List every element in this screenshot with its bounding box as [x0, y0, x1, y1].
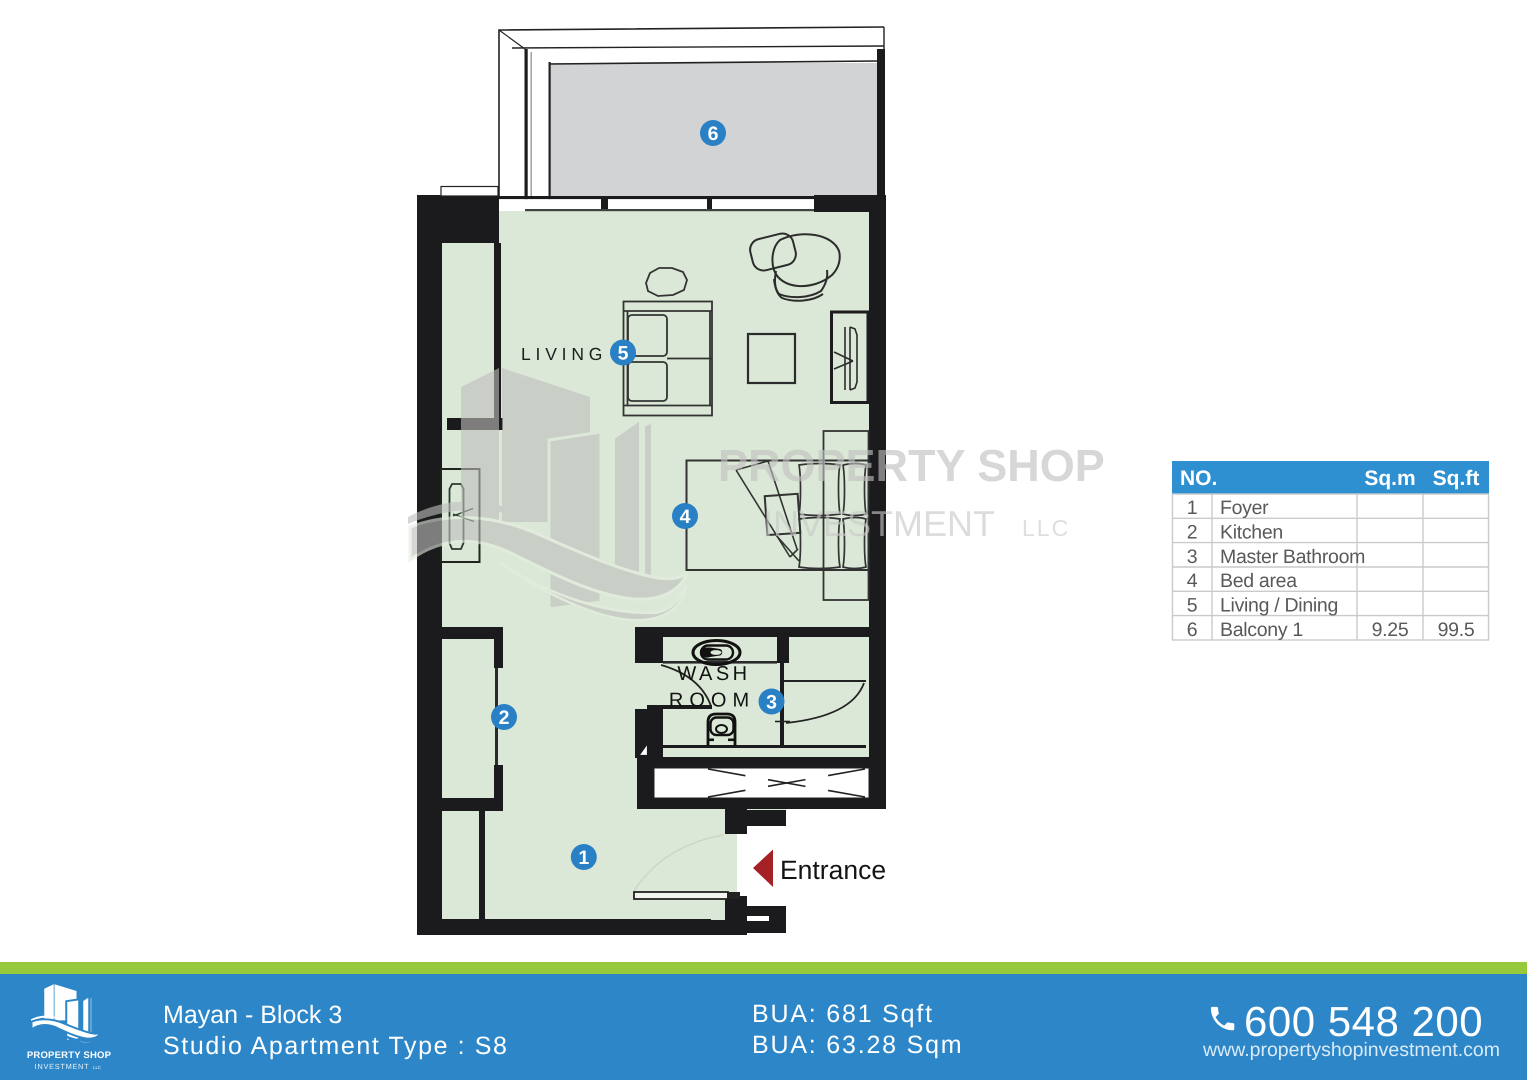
- svg-text:NO.: NO.: [1180, 467, 1217, 490]
- svg-text:BUA: 63.28 Sqm: BUA: 63.28 Sqm: [752, 1031, 963, 1059]
- svg-text:INVESTMENT: INVESTMENT: [763, 503, 995, 544]
- svg-text:LIVING: LIVING: [521, 344, 607, 364]
- svg-text:5: 5: [618, 343, 629, 365]
- svg-text:3: 3: [1187, 546, 1198, 568]
- svg-text:PROPERTY SHOP: PROPERTY SHOP: [718, 440, 1105, 491]
- svg-text:1: 1: [1187, 497, 1198, 519]
- svg-text:4: 4: [1187, 570, 1198, 592]
- svg-text:Entrance: Entrance: [780, 855, 886, 885]
- svg-text:2: 2: [1187, 522, 1198, 544]
- svg-text:600 548 200: 600 548 200: [1244, 998, 1483, 1045]
- svg-text:LLC: LLC: [1022, 515, 1070, 541]
- svg-text:Bed area: Bed area: [1220, 570, 1297, 592]
- svg-text:Living / Dining: Living / Dining: [1220, 595, 1338, 617]
- svg-text:Studio Apartment Type : S8: Studio Apartment Type : S8: [163, 1032, 509, 1060]
- svg-text:6: 6: [1187, 619, 1198, 641]
- svg-text:BUA: 681 Sqft: BUA: 681 Sqft: [752, 1000, 934, 1028]
- svg-text:6: 6: [708, 123, 719, 145]
- svg-text:99.5: 99.5: [1438, 619, 1475, 641]
- svg-text:Master Bathroom: Master Bathroom: [1220, 546, 1365, 568]
- svg-text:Sq.m: Sq.m: [1364, 467, 1415, 490]
- svg-text:Balcony 1: Balcony 1: [1220, 619, 1303, 641]
- svg-text:5: 5: [1187, 595, 1198, 617]
- svg-text:INVESTMENT: INVESTMENT: [35, 1062, 90, 1071]
- svg-text:3: 3: [766, 692, 777, 714]
- svg-text:Foyer: Foyer: [1220, 497, 1269, 519]
- svg-text:4: 4: [680, 506, 691, 528]
- svg-text:Kitchen: Kitchen: [1220, 522, 1283, 544]
- svg-text:LLC: LLC: [93, 1065, 101, 1070]
- svg-text:Sq.ft: Sq.ft: [1433, 467, 1480, 490]
- svg-text:www.propertyshopinvestment.com: www.propertyshopinvestment.com: [1202, 1039, 1500, 1061]
- svg-text:WASH: WASH: [677, 663, 750, 685]
- svg-text:9.25: 9.25: [1372, 619, 1409, 641]
- svg-text:1: 1: [578, 847, 589, 869]
- svg-text:PROPERTY SHOP: PROPERTY SHOP: [27, 1050, 112, 1061]
- svg-text:2: 2: [499, 707, 510, 729]
- svg-text:ROOM: ROOM: [669, 690, 755, 712]
- svg-text:Mayan - Block 3: Mayan - Block 3: [163, 1001, 342, 1029]
